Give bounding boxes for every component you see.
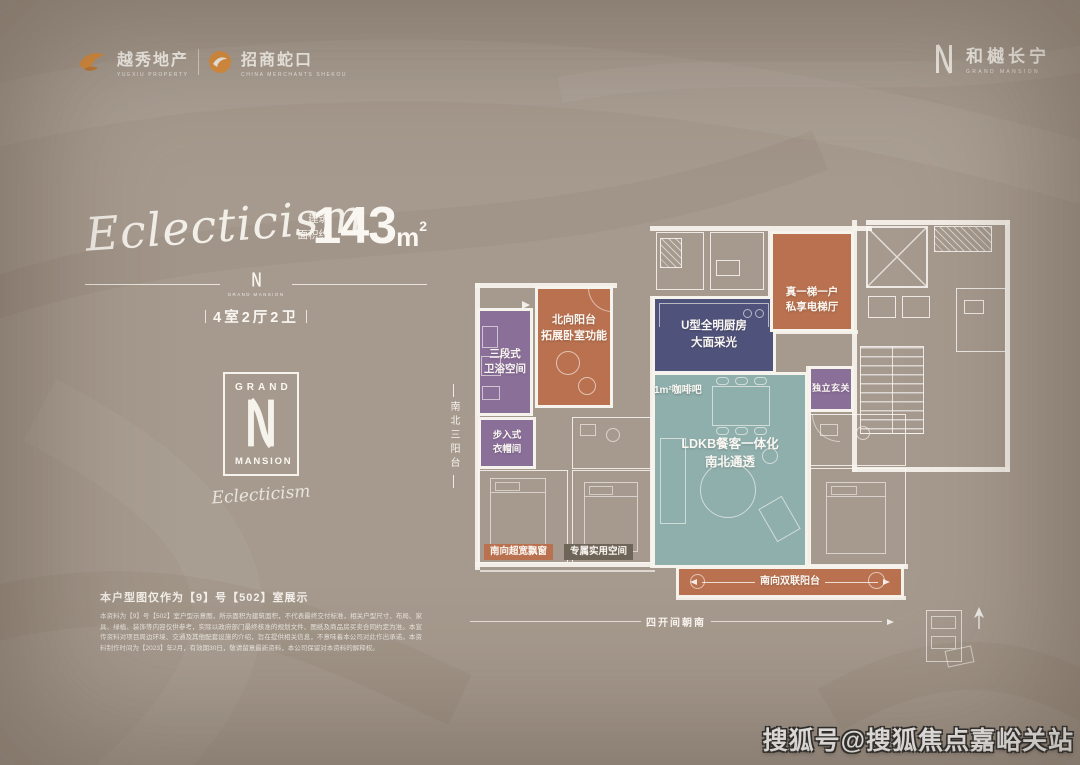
room-closet-label1: 步入式	[493, 429, 522, 443]
annotation-line	[711, 621, 882, 622]
cmsk-name: 招商蛇口	[241, 46, 347, 70]
north-arrow-icon	[972, 606, 986, 630]
sofa	[660, 438, 686, 524]
shower	[481, 356, 501, 376]
cmsk-logo: 招商蛇口 CHINA MERCHANTS SHEKOU	[241, 46, 347, 78]
plant-outline	[690, 574, 705, 589]
hero-divider: GRAND MANSION	[85, 272, 427, 297]
coffee-bar-label: 1m²咖啡吧	[654, 381, 702, 396]
room-kitchen: U型全明厨房 大面采光	[652, 296, 776, 374]
kitchen-counter	[659, 303, 769, 327]
stair-divider	[892, 347, 893, 433]
cmsk-name-en: CHINA MERCHANTS SHEKOU	[241, 72, 347, 78]
fixture	[580, 424, 596, 436]
logo-divider	[198, 49, 199, 75]
room-closet-label2: 衣帽间	[493, 443, 522, 457]
yuexiu-logo: 越秀地产 YUEXIU PROPERTY	[117, 46, 189, 78]
coffee-table	[700, 462, 756, 518]
keyplan-room	[931, 636, 956, 649]
unit-note: 本户型图仅作为【9】号【502】室展示	[100, 589, 308, 605]
dining-chair	[716, 377, 729, 385]
room-south-balcony-label: 南向双联阳台	[760, 575, 820, 590]
room-north-balcony-label1: 北向阳台	[552, 313, 596, 329]
bed	[490, 478, 546, 550]
header-left-logos: 越秀地产 YUEXIU PROPERTY 招商蛇口 CHINA MERCHANT…	[78, 46, 347, 78]
side-table	[762, 448, 778, 464]
fixture	[482, 386, 500, 400]
dining-chair	[735, 427, 748, 435]
bed	[826, 482, 886, 554]
divider-brand-mark: GRAND MANSION	[228, 272, 285, 297]
yuexiu-name-en: YUEXIU PROPERTY	[117, 72, 189, 78]
disclaimer-text: 本资料为【9】号【502】室户型示意图，所示面积为建筑面积，不代表最终交付标准，…	[100, 612, 422, 655]
badge-bar-right	[306, 310, 307, 323]
bottom-annotation-text: 四开间朝南	[646, 614, 706, 629]
area-number: 143	[312, 200, 396, 252]
area-value: 143 m 2	[312, 200, 427, 253]
hero-block: Eclecticism 建筑 面积约 143 m 2 GRAND MANSION	[85, 192, 427, 327]
sohu-watermark: 搜狐号@搜狐焦点嘉峪关站	[763, 721, 1074, 757]
flue-shaft	[660, 238, 682, 268]
header-right-logo: 和樾长宁 GRAND MANSION	[931, 42, 1050, 75]
lobby-room	[956, 288, 1006, 352]
room-elevator-hall-label2: 私享电梯厅	[786, 300, 839, 315]
divider-line-right	[292, 284, 427, 285]
dimension-tick	[453, 475, 454, 488]
room-closet: 步入式 衣帽间	[478, 417, 536, 469]
room-foyer: 独立玄关	[808, 366, 854, 412]
yuexiu-bird-icon	[78, 50, 108, 74]
kitchen-sink	[755, 309, 764, 318]
bed	[584, 482, 638, 552]
kitchen-sink	[743, 309, 752, 318]
dining-chair	[754, 427, 767, 435]
room-north-balcony-label2: 拓展卧室功能	[541, 329, 607, 345]
brand-box-monogram-icon	[244, 398, 278, 448]
shaft-hatched	[934, 226, 992, 252]
yuexiu-name: 越秀地产	[117, 46, 189, 70]
brand-logo: 和樾长宁 GRAND MANSION	[966, 42, 1050, 75]
room-foyer-label: 独立玄关	[812, 382, 850, 395]
dining-chair	[716, 427, 729, 435]
room-kitchen-label2: 大面采光	[691, 335, 737, 352]
staircase	[860, 346, 924, 434]
dimension-tick	[453, 384, 454, 397]
chip-bay-window: 南向超宽飘窗	[484, 544, 553, 560]
plant-outline	[868, 572, 885, 589]
keyplan-room	[931, 616, 956, 629]
brand-name-en: GRAND MANSION	[966, 69, 1050, 75]
divider-monogram-icon	[250, 272, 263, 287]
area-unit: m	[396, 222, 419, 253]
brand-box-signature: Eclecticism	[209, 481, 312, 508]
bay-window-line	[480, 570, 655, 572]
core-closet	[868, 296, 896, 318]
wall	[866, 220, 1010, 225]
brand-box: GRAND MANSION Eclecticism	[210, 372, 312, 505]
dining-chair	[735, 377, 748, 385]
cmsk-icon	[208, 50, 232, 74]
fixture	[482, 326, 498, 348]
dining-chair	[754, 377, 767, 385]
brand-box-mansion: MANSION	[235, 456, 287, 467]
elevator-shaft	[866, 226, 928, 288]
plant-outline	[578, 377, 596, 395]
room-elevator-hall-label1: 真一梯一户	[786, 285, 839, 300]
core-closet	[902, 296, 930, 318]
lobby-fixture	[964, 300, 984, 314]
equipment-platform	[716, 260, 740, 276]
arrow-right-icon	[887, 619, 894, 625]
brand-name: 和樾长宁	[966, 42, 1050, 67]
fixture	[606, 428, 620, 442]
area-superscript: 2	[419, 218, 427, 234]
divider-brand-text: GRAND MANSION	[228, 292, 285, 297]
layout-badge-text: 4室2厅2卫	[213, 306, 299, 327]
divider-line-left	[85, 284, 220, 285]
plant-outline	[556, 351, 580, 375]
chip-private-space: 专属实用空间	[564, 544, 633, 560]
annotation-line	[470, 621, 641, 622]
brand-box-frame: GRAND MANSION	[223, 372, 299, 476]
layout-badge: 4室2厅2卫	[85, 306, 427, 327]
arrow-line	[702, 582, 755, 583]
bottom-annotation: 四开间朝南	[470, 614, 894, 629]
dining-table	[712, 386, 770, 426]
entry-arrow-icon	[522, 301, 530, 309]
side-annotation-text: 南北三阳台	[446, 401, 461, 471]
grand-mansion-monogram-icon	[931, 44, 957, 74]
badge-bar-left	[205, 310, 206, 323]
brand-box-grand: GRAND	[235, 382, 287, 393]
side-annotation: 南北三阳台	[446, 380, 460, 492]
room-elevator-hall: 真一梯一户 私享电梯厅	[770, 231, 854, 332]
poster-canvas: 越秀地产 YUEXIU PROPERTY 招商蛇口 CHINA MERCHANT…	[0, 0, 1080, 765]
